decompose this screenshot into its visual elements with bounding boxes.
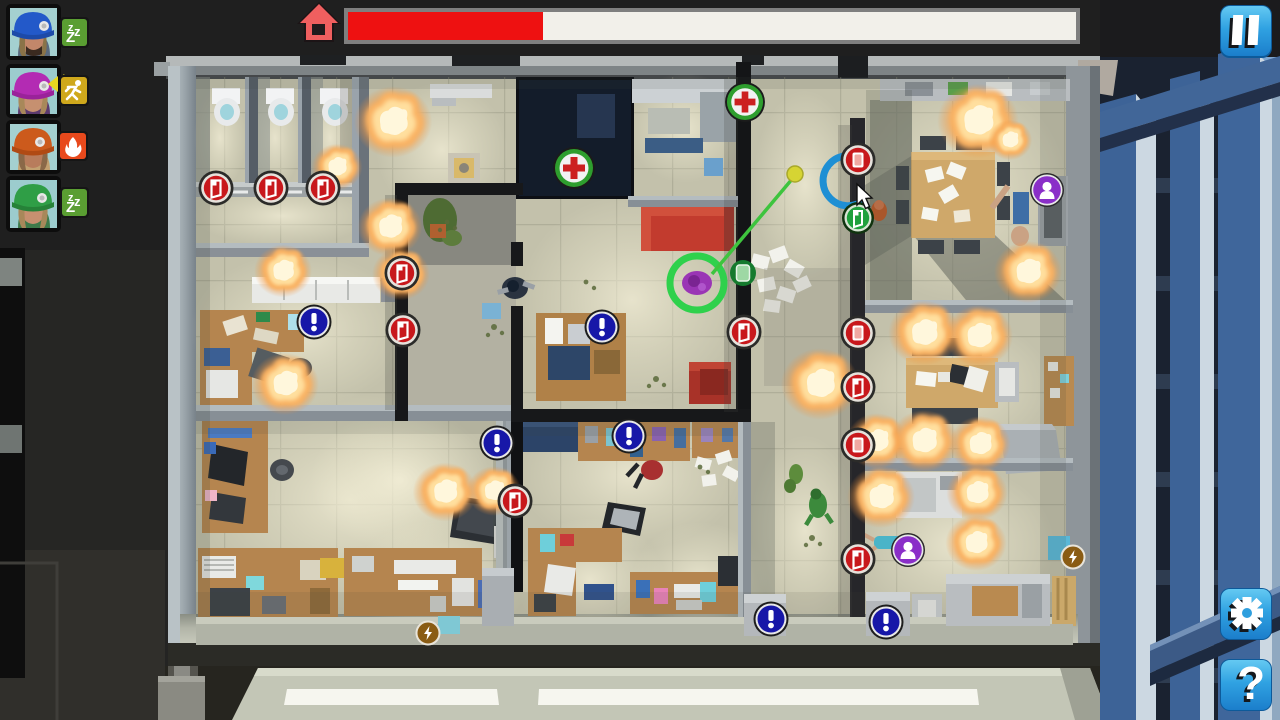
svg-text:?: ? [1237, 657, 1265, 709]
svg-text:Z: Z [66, 29, 75, 46]
svg-text:Z: Z [66, 199, 75, 216]
